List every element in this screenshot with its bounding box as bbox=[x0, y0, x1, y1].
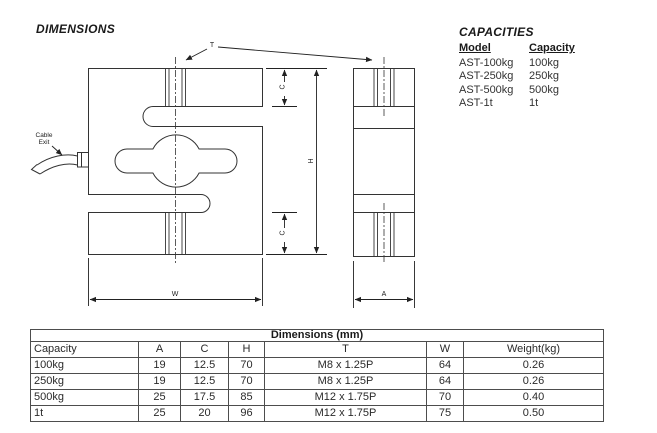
cable-exit bbox=[32, 146, 89, 174]
t-leader-left bbox=[186, 49, 207, 60]
dim-label-c-bottom: C bbox=[280, 230, 287, 235]
datasheet-page: { "headings": { "dimensions": "DIMENSION… bbox=[0, 0, 657, 433]
front-view bbox=[89, 57, 263, 264]
table-row: 500kg 25 17.5 85 M12 x 1.75P 70 0.40 bbox=[31, 390, 604, 406]
col-header-t: T bbox=[265, 342, 427, 358]
dim-label-c-top: C bbox=[280, 84, 287, 89]
col-header-a: A bbox=[139, 342, 181, 358]
cable-end bbox=[32, 165, 41, 175]
t-leader-right bbox=[218, 47, 372, 60]
dim-label-h: H bbox=[308, 158, 315, 163]
dimensions-table-header-row: Capacity A C H T W Weight(kg) bbox=[31, 342, 604, 358]
col-header-weight: Weight(kg) bbox=[464, 342, 604, 358]
col-header-c: C bbox=[181, 342, 229, 358]
table-row: 100kg 19 12.5 70 M8 x 1.25P 64 0.26 bbox=[31, 358, 604, 374]
dim-label-a: A bbox=[382, 291, 387, 298]
cable-gland bbox=[78, 153, 89, 168]
dimensions-table-title: Dimensions (mm) bbox=[31, 330, 604, 342]
cable-exit-label-line1: Cable bbox=[36, 132, 53, 139]
dim-label-t: T bbox=[210, 42, 215, 49]
col-header-w: W bbox=[427, 342, 464, 358]
dimensions-table-title-row: Dimensions (mm) bbox=[31, 330, 604, 342]
side-view bbox=[354, 57, 415, 264]
cable-wire bbox=[40, 164, 78, 174]
dim-label-w: W bbox=[172, 291, 179, 298]
col-header-capacity: Capacity bbox=[31, 342, 139, 358]
dimensions-table: Dimensions (mm) Capacity A C H T W Weigh… bbox=[30, 329, 604, 422]
table-row: 1t 25 20 96 M12 x 1.75P 75 0.50 bbox=[31, 406, 604, 422]
col-header-h: H bbox=[229, 342, 265, 358]
table-row: 250kg 19 12.5 70 M8 x 1.25P 64 0.26 bbox=[31, 374, 604, 390]
load-cell-technical-drawing: T C C H W A Cable Exit bbox=[0, 0, 657, 322]
cable-exit-leader bbox=[52, 146, 62, 155]
cable-exit-label-line2: Exit bbox=[39, 139, 50, 146]
